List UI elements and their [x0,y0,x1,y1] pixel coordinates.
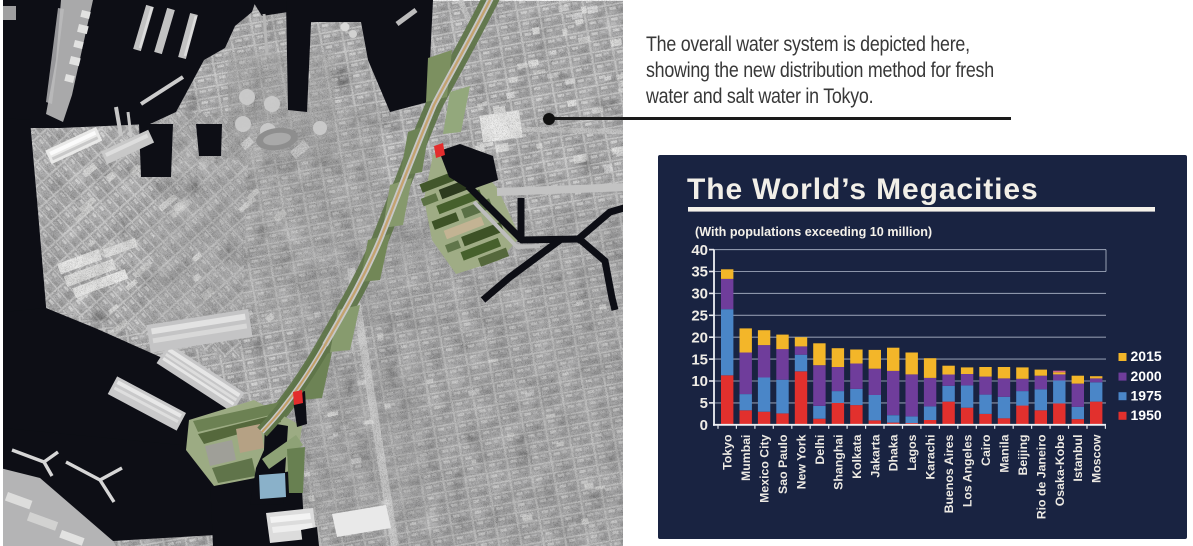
svg-text:Karachi: Karachi [924,435,938,480]
svg-text:35: 35 [691,264,708,281]
svg-text:Kolkata: Kolkata [850,434,864,479]
svg-text:1950: 1950 [1131,407,1162,423]
svg-text:1975: 1975 [1131,387,1162,403]
svg-text:Mumbai: Mumbai [739,435,753,481]
svg-text:Sao Paulo: Sao Paulo [776,434,790,494]
svg-text:40: 40 [691,242,708,259]
svg-text:15: 15 [691,351,708,368]
svg-text:Tokyo: Tokyo [721,434,735,470]
svg-text:Istanbul: Istanbul [1071,435,1085,482]
svg-text:New York: New York [795,434,809,489]
svg-text:Dhaka: Dhaka [887,434,901,471]
svg-text:Buenos Aires: Buenos Aires [942,434,956,513]
svg-text:0: 0 [700,417,708,434]
svg-text:Rio de Janeiro: Rio de Janeiro [1034,434,1048,519]
svg-text:Beijing: Beijing [1016,435,1030,476]
svg-text:Manila: Manila [997,434,1011,472]
svg-text:25: 25 [691,308,708,325]
svg-text:Moscow: Moscow [1090,434,1104,483]
svg-text:Lagos: Lagos [905,434,919,470]
svg-text:Mexico City: Mexico City [758,434,772,502]
svg-text:Los Angeles: Los Angeles [961,434,975,507]
svg-text:Cairo: Cairo [979,434,993,466]
svg-text:Shanghai: Shanghai [831,435,845,490]
svg-text:20: 20 [691,329,708,346]
svg-text:10: 10 [691,373,708,390]
svg-text:2015: 2015 [1131,348,1162,364]
svg-text:5: 5 [700,395,708,412]
svg-text:(With populations exceeding 10: (With populations exceeding 10 million) [695,225,932,239]
svg-text:The World’s Megacities: The World’s Megacities [687,173,1039,206]
svg-text:Jakarta: Jakarta [868,434,882,477]
svg-text:Osaka-Kobe: Osaka-Kobe [1053,434,1067,506]
svg-text:Delhi: Delhi [813,435,827,465]
svg-text:2000: 2000 [1131,368,1162,384]
svg-text:30: 30 [691,286,708,303]
